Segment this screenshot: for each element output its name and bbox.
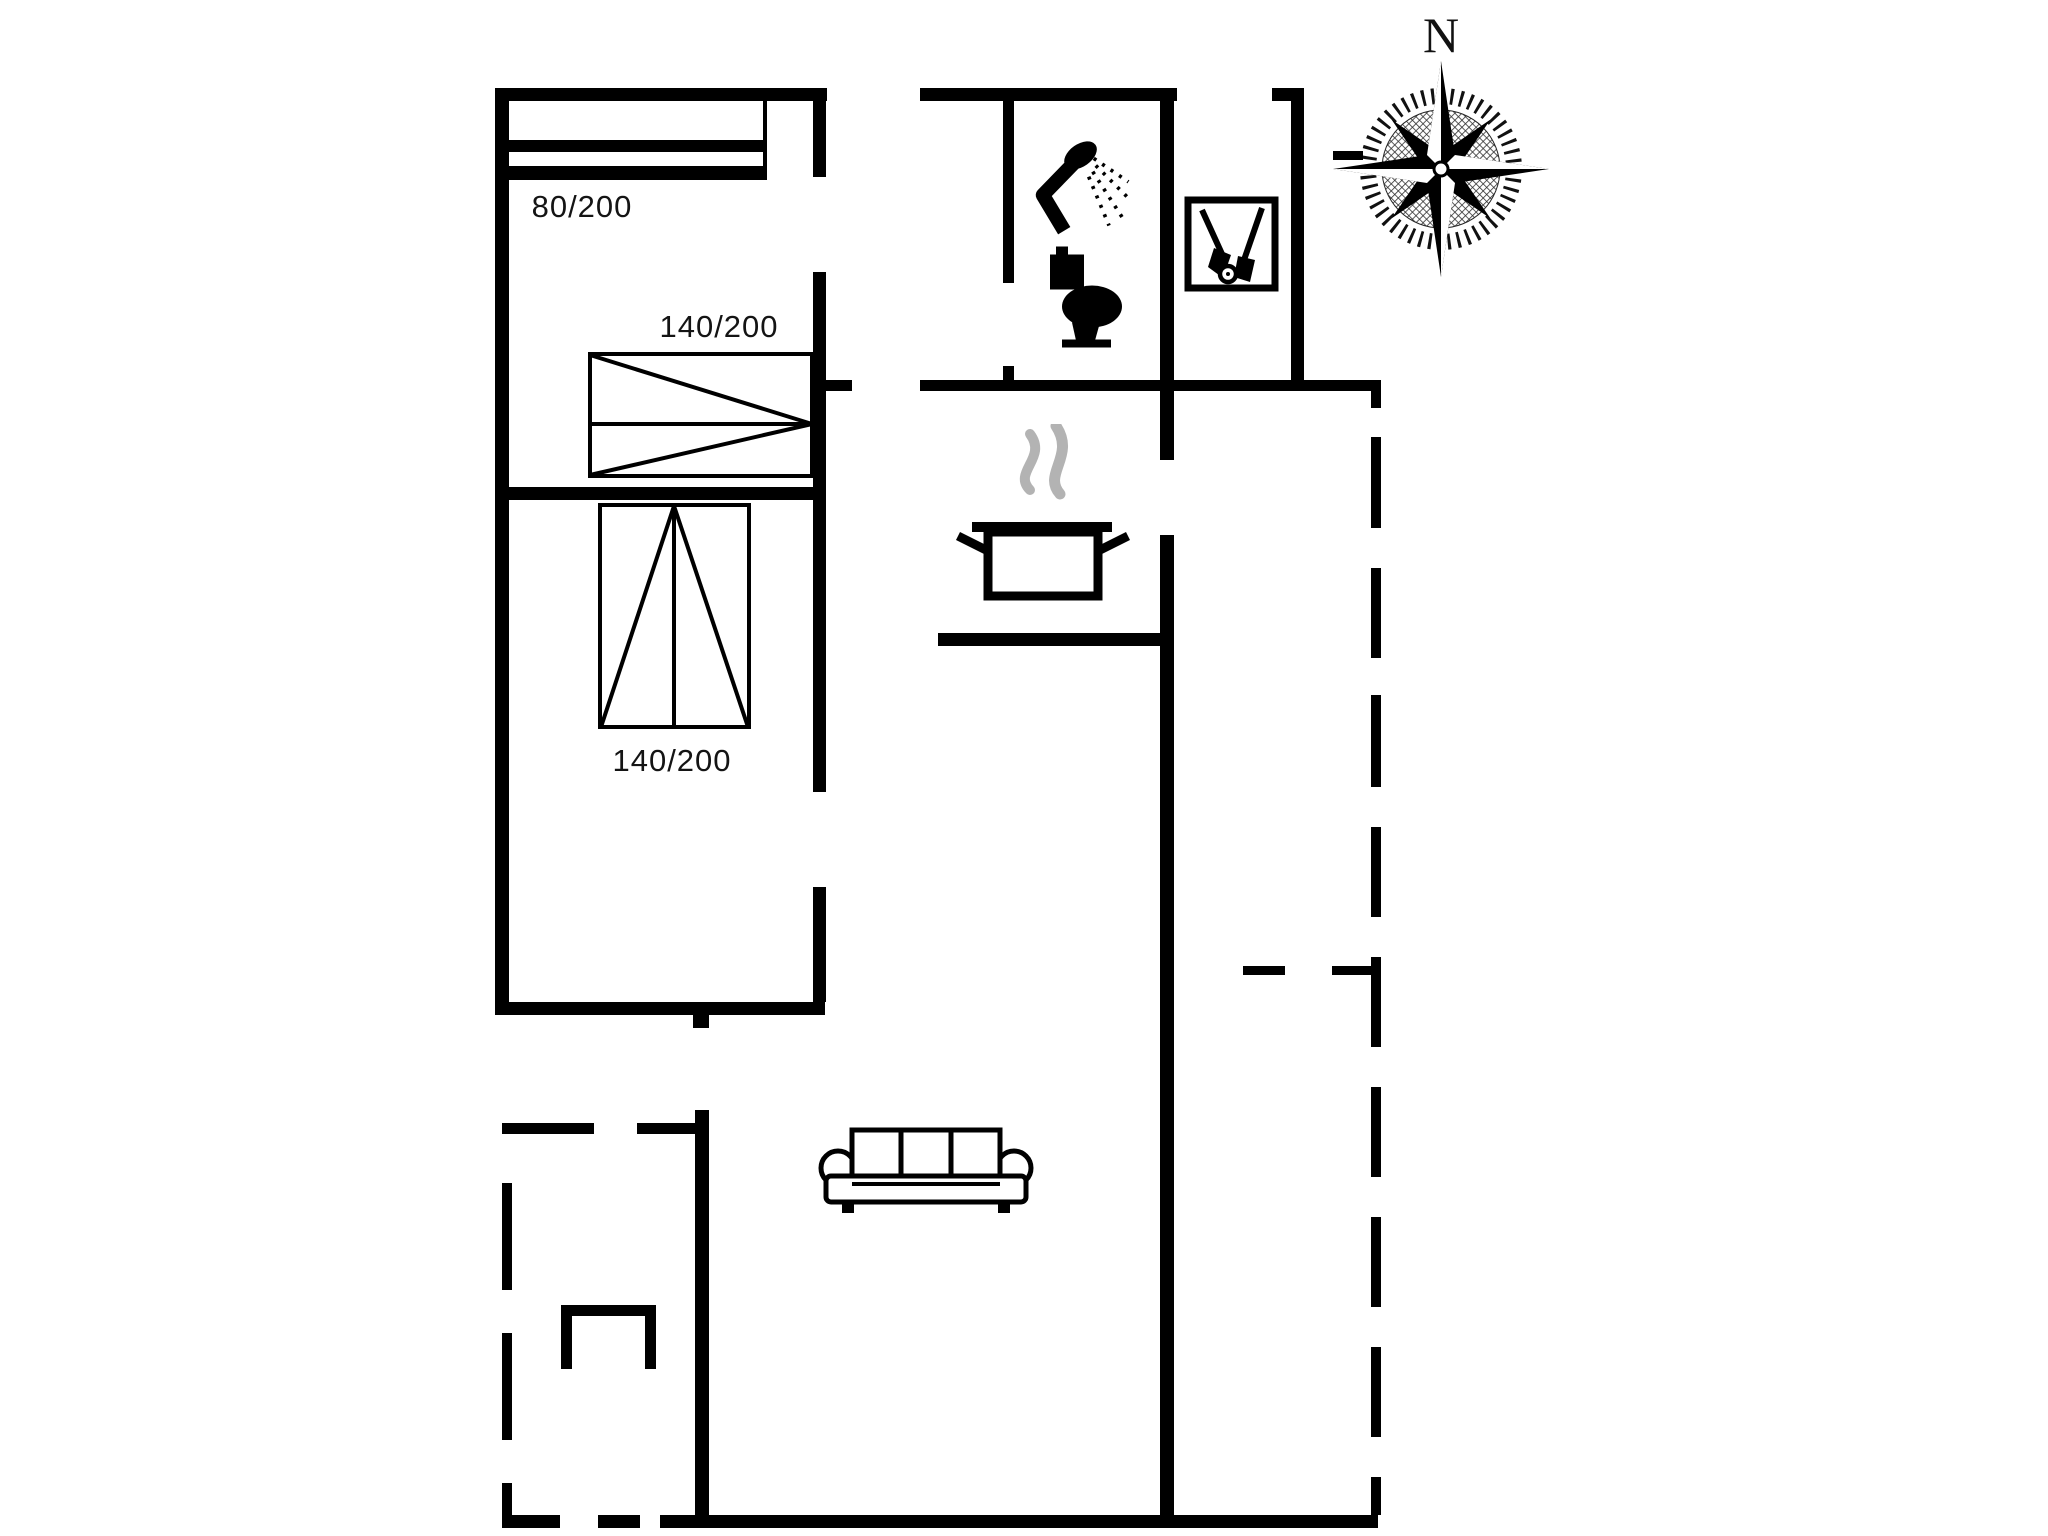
dashed-wall-segment bbox=[598, 1515, 640, 1528]
dashed-wall-segment bbox=[1371, 1477, 1381, 1515]
dashed-wall-segment bbox=[1371, 568, 1381, 658]
dashed-wall-segment bbox=[502, 1123, 594, 1134]
wall-segment bbox=[813, 101, 826, 177]
dashed-wall-segment bbox=[1371, 1347, 1381, 1437]
wall-segment bbox=[1003, 101, 1014, 283]
floor-plan: 80/200 140/200 140/200 bbox=[0, 0, 2048, 1536]
wall-segment bbox=[825, 380, 852, 391]
wall-segment bbox=[1332, 966, 1374, 975]
wall-segment bbox=[938, 633, 1174, 646]
wall-segment bbox=[693, 1002, 709, 1028]
double-bed-symbol-vertical bbox=[598, 503, 751, 729]
wall-segment bbox=[495, 88, 827, 101]
wall-segment bbox=[920, 380, 1378, 391]
dashed-wall-segment bbox=[1371, 1217, 1381, 1307]
bed-dimension-label: 140/200 bbox=[659, 309, 778, 345]
dashed-wall-segment bbox=[502, 1183, 512, 1290]
bed-dimension-label: 80/200 bbox=[532, 189, 633, 225]
wall-segment bbox=[495, 1002, 825, 1015]
cleaning-tools-icon bbox=[1184, 196, 1279, 292]
wall-segment bbox=[695, 1110, 709, 1528]
wall-segment bbox=[660, 1515, 1378, 1528]
bed-dimension-label: 140/200 bbox=[612, 743, 731, 779]
single-bed-symbol bbox=[505, 96, 767, 180]
dashed-wall-segment bbox=[1371, 1087, 1381, 1177]
shower-icon bbox=[1025, 136, 1133, 248]
wall-segment bbox=[1003, 366, 1014, 380]
dashed-wall-segment bbox=[1371, 695, 1381, 787]
double-bed-symbol-horizontal bbox=[588, 352, 814, 478]
dashed-wall-segment bbox=[1371, 827, 1381, 917]
wall-segment bbox=[813, 887, 826, 1002]
wall-segment bbox=[1291, 88, 1304, 380]
dashed-wall-segment bbox=[637, 1123, 697, 1134]
wall-segment bbox=[813, 272, 826, 792]
toilet-icon bbox=[1036, 246, 1136, 349]
wall-segment bbox=[1333, 151, 1363, 160]
sofa-icon bbox=[818, 1124, 1034, 1218]
wall-segment bbox=[1243, 966, 1285, 975]
wall-segment bbox=[920, 88, 1177, 101]
dashed-wall-segment bbox=[1371, 437, 1381, 528]
steam-icon bbox=[1025, 434, 1035, 490]
wall-segment bbox=[495, 88, 509, 1015]
grill-icon bbox=[561, 1305, 656, 1369]
wall-segment bbox=[1160, 535, 1174, 1528]
wall-segment bbox=[503, 487, 815, 500]
dashed-wall-segment bbox=[1371, 957, 1381, 1047]
dashed-wall-segment bbox=[502, 1515, 560, 1528]
wall-segment bbox=[1371, 380, 1381, 408]
cooking-pot-icon bbox=[950, 424, 1135, 606]
wall-segment bbox=[1160, 101, 1174, 460]
dashed-wall-segment bbox=[502, 1333, 512, 1440]
north-label: N bbox=[1423, 7, 1459, 63]
compass-rose-icon: N bbox=[1327, 0, 1555, 280]
